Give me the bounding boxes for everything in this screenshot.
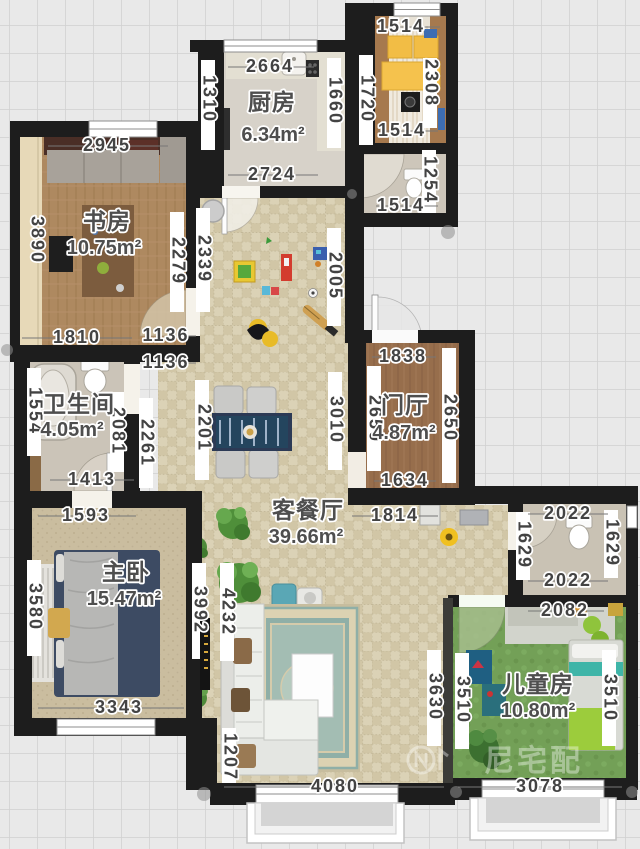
svg-text:3630: 3630 [425, 673, 445, 721]
svg-text:2005: 2005 [325, 252, 345, 300]
svg-text:1838: 1838 [379, 346, 427, 366]
svg-text:1136: 1136 [142, 325, 189, 345]
svg-text:儿童房: 儿童房 [502, 671, 574, 697]
svg-text:1413: 1413 [68, 469, 116, 489]
svg-text:2082: 2082 [541, 600, 589, 620]
svg-text:1514: 1514 [377, 16, 425, 36]
svg-text:1634: 1634 [381, 470, 429, 490]
svg-text:2022: 2022 [544, 503, 592, 523]
svg-text:门厅: 门厅 [381, 392, 429, 418]
svg-text:1629: 1629 [602, 519, 622, 567]
svg-text:2022: 2022 [544, 570, 592, 590]
svg-text:2308: 2308 [421, 59, 441, 107]
svg-text:客餐厅: 客餐厅 [272, 497, 344, 523]
svg-text:4.05m²: 4.05m² [40, 419, 104, 441]
svg-text:尼宅配: 尼宅配 [484, 744, 583, 778]
svg-text:3890: 3890 [27, 216, 47, 264]
svg-text:3992: 3992 [190, 586, 210, 634]
svg-text:3078: 3078 [516, 776, 564, 796]
svg-text:2724: 2724 [248, 164, 296, 184]
svg-text:4232: 4232 [218, 588, 238, 636]
svg-text:1720: 1720 [357, 75, 377, 123]
svg-text:书房: 书房 [83, 208, 131, 234]
svg-text:10.80m²: 10.80m² [501, 700, 576, 722]
svg-text:2664: 2664 [246, 56, 294, 76]
svg-text:1310: 1310 [199, 75, 219, 123]
svg-text:2279: 2279 [168, 237, 188, 285]
svg-text:3510: 3510 [453, 676, 473, 724]
svg-text:39.66m²: 39.66m² [269, 526, 344, 548]
svg-text:4080: 4080 [311, 776, 359, 796]
svg-text:2201: 2201 [194, 404, 214, 452]
svg-text:1514: 1514 [378, 120, 426, 140]
svg-text:4.87m²: 4.87m² [372, 422, 436, 444]
svg-text:2339: 2339 [194, 235, 214, 283]
svg-text:2650: 2650 [440, 394, 460, 442]
svg-text:主卧: 主卧 [102, 559, 150, 585]
svg-text:1810: 1810 [53, 327, 101, 347]
svg-text:1660: 1660 [325, 77, 345, 125]
svg-text:6.34m²: 6.34m² [241, 124, 305, 146]
svg-text:2261: 2261 [137, 419, 157, 467]
svg-text:1136: 1136 [142, 352, 189, 372]
svg-text:3510: 3510 [600, 674, 620, 722]
svg-text:厨房: 厨房 [248, 89, 296, 115]
svg-text:1207: 1207 [220, 733, 240, 781]
svg-text:3010: 3010 [326, 396, 346, 444]
svg-text:15.47m²: 15.47m² [87, 588, 162, 610]
svg-text:3580: 3580 [25, 583, 45, 631]
svg-text:1593: 1593 [62, 505, 110, 525]
svg-text:1629: 1629 [514, 521, 534, 569]
svg-text:1814: 1814 [371, 505, 419, 525]
svg-text:2945: 2945 [83, 135, 131, 155]
svg-text:10.75m²: 10.75m² [67, 237, 142, 259]
svg-text:1514: 1514 [377, 195, 425, 215]
svg-text:卫生间: 卫生间 [43, 391, 115, 417]
svg-text:1254: 1254 [420, 156, 440, 204]
svg-text:3343: 3343 [95, 697, 143, 717]
